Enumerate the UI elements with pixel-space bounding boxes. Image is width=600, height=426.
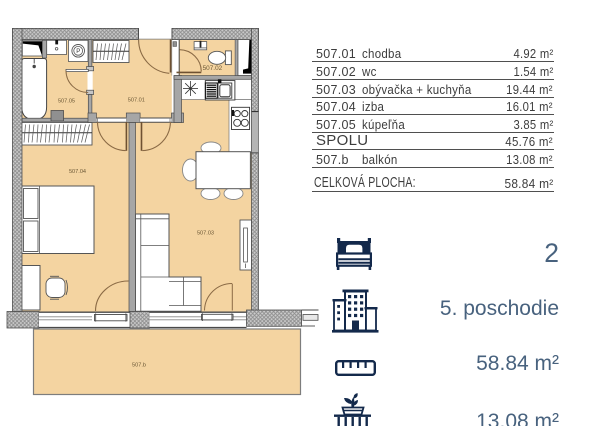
svg-text:507.02: 507.02 <box>203 65 223 72</box>
svg-text:507.03: 507.03 <box>197 231 214 237</box>
svg-text:507.04: 507.04 <box>69 169 86 175</box>
svg-text:507.05: 507.05 <box>58 99 75 105</box>
svg-text:P: P <box>76 49 80 55</box>
svg-text:507.b: 507.b <box>132 363 146 369</box>
svg-text:507.01: 507.01 <box>128 98 145 104</box>
